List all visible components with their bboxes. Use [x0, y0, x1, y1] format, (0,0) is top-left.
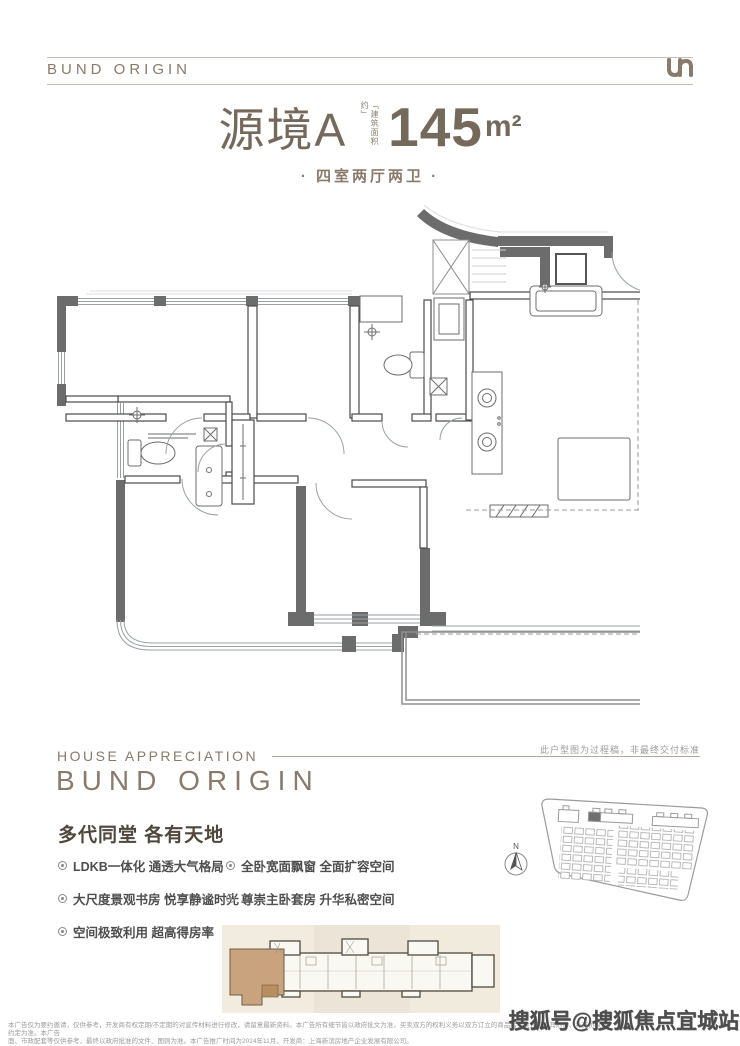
site-parking-grid — [558, 821, 696, 890]
ring-bullet-icon — [226, 894, 235, 903]
feature-label: 空间极致利用 超高得房率 — [73, 922, 214, 941]
area-note-vertical: 「建筑面积约」 — [359, 101, 379, 153]
unit-name: 源境A — [218, 94, 347, 160]
wc-cabinet — [434, 298, 464, 340]
brand-monogram-icon — [666, 58, 694, 80]
highlighted-unit-core — [262, 985, 278, 997]
stove-icon — [472, 372, 502, 474]
vanity-icon — [196, 446, 222, 506]
feature-item: 空间极致利用 超高得房率 — [58, 922, 226, 941]
vent-hatch — [490, 505, 548, 517]
site-plan: N — [496, 768, 726, 913]
section-eyebrow: HOUSE APPRECIATION — [57, 748, 258, 764]
feature-label: 大尺度景观书房 悦享静谧时光 — [73, 889, 239, 908]
toilet-icon — [128, 440, 175, 466]
compass-icon: N — [505, 842, 527, 875]
unit-key-plan — [222, 925, 500, 1013]
selling-point-heading: 多代同堂 各有天地 — [58, 820, 224, 847]
feature-item: LDKB一体化 通透大气格局 — [58, 856, 226, 875]
interior-walls — [66, 292, 640, 548]
feature-item: 大尺度景观书房 悦享静谧时光 — [58, 889, 226, 908]
area-unit: m² — [485, 110, 522, 144]
brand-logotype: BUND ORIGIN — [47, 61, 191, 78]
floor-plan — [50, 205, 640, 745]
ring-bullet-icon — [58, 927, 67, 936]
floor-drain-icon — [204, 428, 217, 441]
ring-bullet-icon — [58, 861, 67, 870]
header-top-rule — [47, 57, 693, 58]
feature-label: 尊崇主卧套房 升华私密空间 — [241, 889, 394, 908]
feature-label: LDKB一体化 通透大气格局 — [73, 856, 224, 875]
disclaimer-line-2: 面、市政配套等仅供参考，最终以政府批准的文件、图则为准。本广告推广时间为2024… — [8, 1038, 608, 1046]
feature-label: 全卧宽面飘窗 全面扩容空间 — [241, 856, 394, 875]
sohu-watermark: 搜狐号@搜狐焦点宜城站 — [509, 1005, 739, 1035]
poster-page: BUND ORIGIN 源境A 「建筑面积约」 145 m² · 四室两厅两卫 … — [0, 0, 740, 1046]
section-brand-logotype: BUND ORIGIN — [56, 765, 320, 797]
compass-label: N — [513, 842, 519, 851]
exterior-walls — [57, 209, 640, 652]
kitchen-island — [558, 438, 630, 500]
balcony-outline — [402, 632, 640, 704]
area-value: 145 — [388, 100, 483, 155]
header-bottom-rule — [47, 84, 693, 85]
title-row: 源境A 「建筑面积约」 145 m² — [0, 94, 740, 160]
feature-item: 全卧宽面飘窗 全面扩容空间 — [226, 856, 433, 875]
bath-counter — [360, 296, 402, 322]
window-lines — [59, 299, 641, 651]
sink-faucet-2-icon — [364, 324, 380, 340]
section-divider-line — [272, 756, 700, 757]
ring-bullet-icon — [226, 861, 235, 870]
feature-item: 尊崇主卧套房 升华私密空间 — [226, 889, 433, 908]
toilet-2-icon — [384, 352, 424, 378]
section-eyebrow-row: HOUSE APPRECIATION — [57, 748, 700, 764]
washer-icon — [430, 378, 447, 395]
unit-layout-subtitle: · 四室两厅两卫 · — [0, 165, 740, 186]
highlighted-building — [588, 812, 600, 822]
kitchen-sink-icon — [530, 281, 602, 316]
ring-bullet-icon — [58, 894, 67, 903]
